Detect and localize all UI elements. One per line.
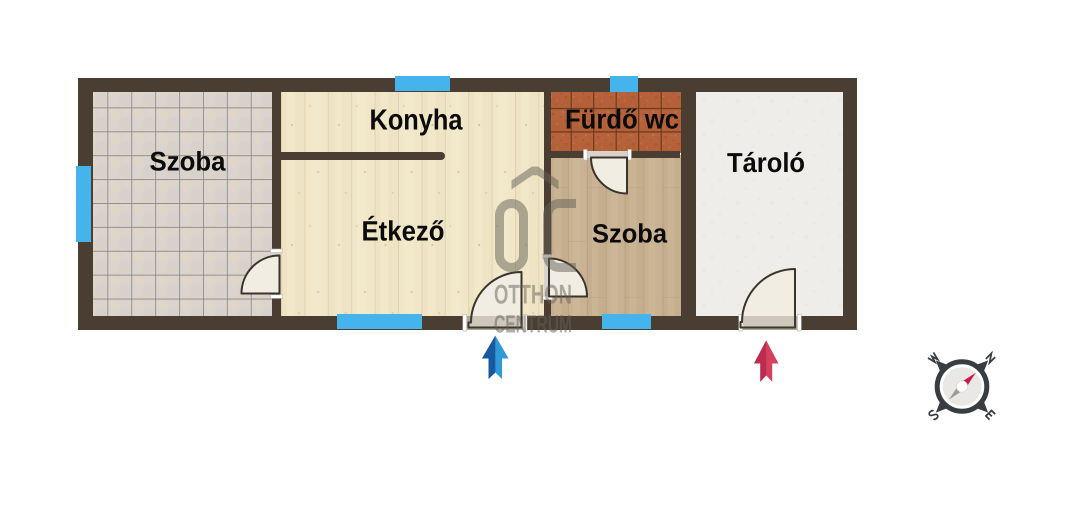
- svg-text:Étkező: Étkező: [362, 216, 445, 247]
- svg-text:OTTHON: OTTHON: [494, 280, 572, 310]
- svg-text:Tároló: Tároló: [727, 147, 805, 178]
- svg-text:Konyha: Konyha: [370, 105, 464, 137]
- svg-text:Fürdő wc: Fürdő wc: [565, 104, 679, 135]
- svg-text:CENTRUM: CENTRUM: [494, 311, 572, 339]
- svg-text:Szoba: Szoba: [150, 147, 227, 177]
- svg-text:Szoba: Szoba: [592, 219, 667, 249]
